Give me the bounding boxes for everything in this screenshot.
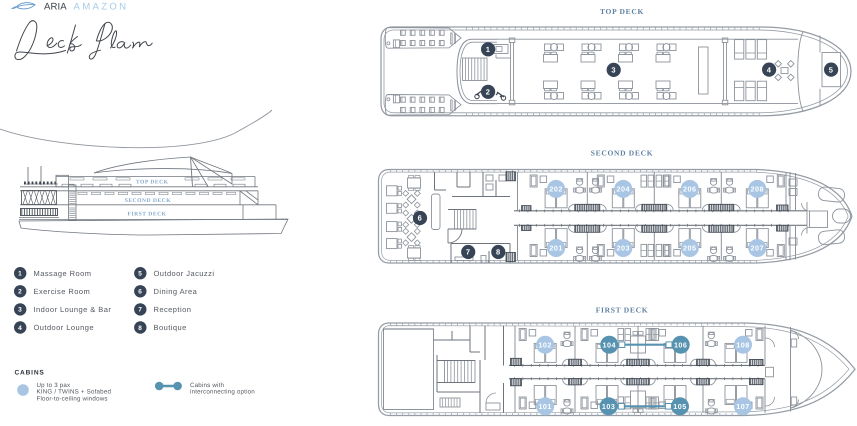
- svg-text:interconnecting option: interconnecting option: [190, 389, 255, 396]
- svg-text:203: 203: [617, 244, 631, 253]
- svg-text:Floor-to-ceiling windows: Floor-to-ceiling windows: [37, 396, 108, 403]
- svg-text:Exercise Room: Exercise Room: [34, 287, 91, 296]
- svg-text:Massage Room: Massage Room: [34, 269, 92, 278]
- svg-text:SECOND DECK: SECOND DECK: [591, 149, 654, 158]
- svg-text:4: 4: [767, 65, 772, 74]
- svg-text:207: 207: [751, 244, 765, 253]
- svg-text:202: 202: [549, 185, 563, 194]
- svg-text:Outdoor Lounge: Outdoor Lounge: [34, 323, 95, 332]
- svg-text:Reception: Reception: [154, 305, 192, 314]
- svg-text:102: 102: [538, 340, 552, 349]
- svg-text:103: 103: [602, 402, 616, 411]
- svg-text:8: 8: [138, 325, 142, 332]
- svg-text:FIRST DECK: FIRST DECK: [128, 212, 167, 218]
- svg-text:105: 105: [673, 402, 687, 411]
- svg-text:TOP DECK: TOP DECK: [600, 7, 644, 16]
- svg-text:1: 1: [18, 271, 22, 278]
- svg-text:5: 5: [829, 65, 834, 74]
- svg-text:4: 4: [18, 325, 22, 332]
- svg-text:101: 101: [538, 402, 552, 411]
- svg-text:8: 8: [496, 248, 501, 257]
- svg-text:201: 201: [549, 244, 563, 253]
- svg-text:1: 1: [486, 45, 491, 54]
- svg-text:106: 106: [674, 340, 688, 349]
- svg-text:107: 107: [736, 402, 750, 411]
- svg-text:2: 2: [486, 88, 491, 97]
- svg-text:6: 6: [418, 214, 423, 223]
- svg-text:205: 205: [683, 244, 697, 253]
- svg-text:ARIA: ARIA: [44, 1, 67, 12]
- svg-text:3: 3: [18, 307, 22, 314]
- svg-text:Dining Area: Dining Area: [154, 287, 198, 296]
- svg-text:7: 7: [138, 307, 142, 314]
- svg-text:AMAZON: AMAZON: [74, 1, 129, 12]
- svg-text:206: 206: [683, 185, 697, 194]
- svg-text:208: 208: [751, 185, 765, 194]
- svg-text:Outdoor Jacuzzi: Outdoor Jacuzzi: [154, 269, 215, 278]
- svg-text:6: 6: [138, 289, 142, 296]
- svg-text:2: 2: [18, 289, 22, 296]
- svg-text:FIRST DECK: FIRST DECK: [596, 306, 649, 315]
- svg-text:5: 5: [138, 271, 142, 278]
- svg-text:3: 3: [611, 66, 616, 75]
- svg-text:7: 7: [466, 248, 471, 257]
- svg-text:Boutique: Boutique: [154, 323, 187, 332]
- svg-text:SECOND DECK: SECOND DECK: [125, 198, 172, 204]
- svg-text:104: 104: [603, 340, 617, 349]
- svg-text:CABINS: CABINS: [15, 370, 45, 377]
- svg-text:204: 204: [617, 185, 631, 194]
- svg-text:Indoor Lounge & Bar: Indoor Lounge & Bar: [34, 305, 112, 314]
- svg-text:108: 108: [736, 340, 750, 349]
- svg-text:TOP DECK: TOP DECK: [136, 180, 169, 186]
